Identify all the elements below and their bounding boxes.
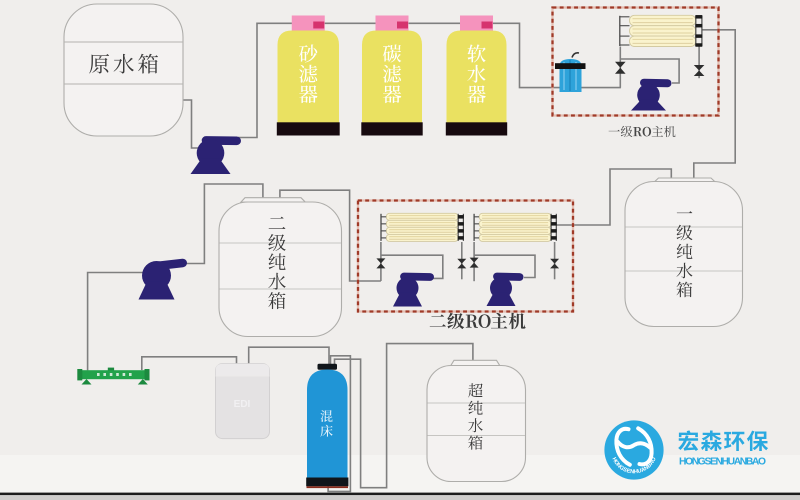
svg-text:HONGSENHUANBAO: HONGSENHUANBAO bbox=[679, 457, 766, 468]
svg-text:EDI: EDI bbox=[234, 399, 251, 410]
